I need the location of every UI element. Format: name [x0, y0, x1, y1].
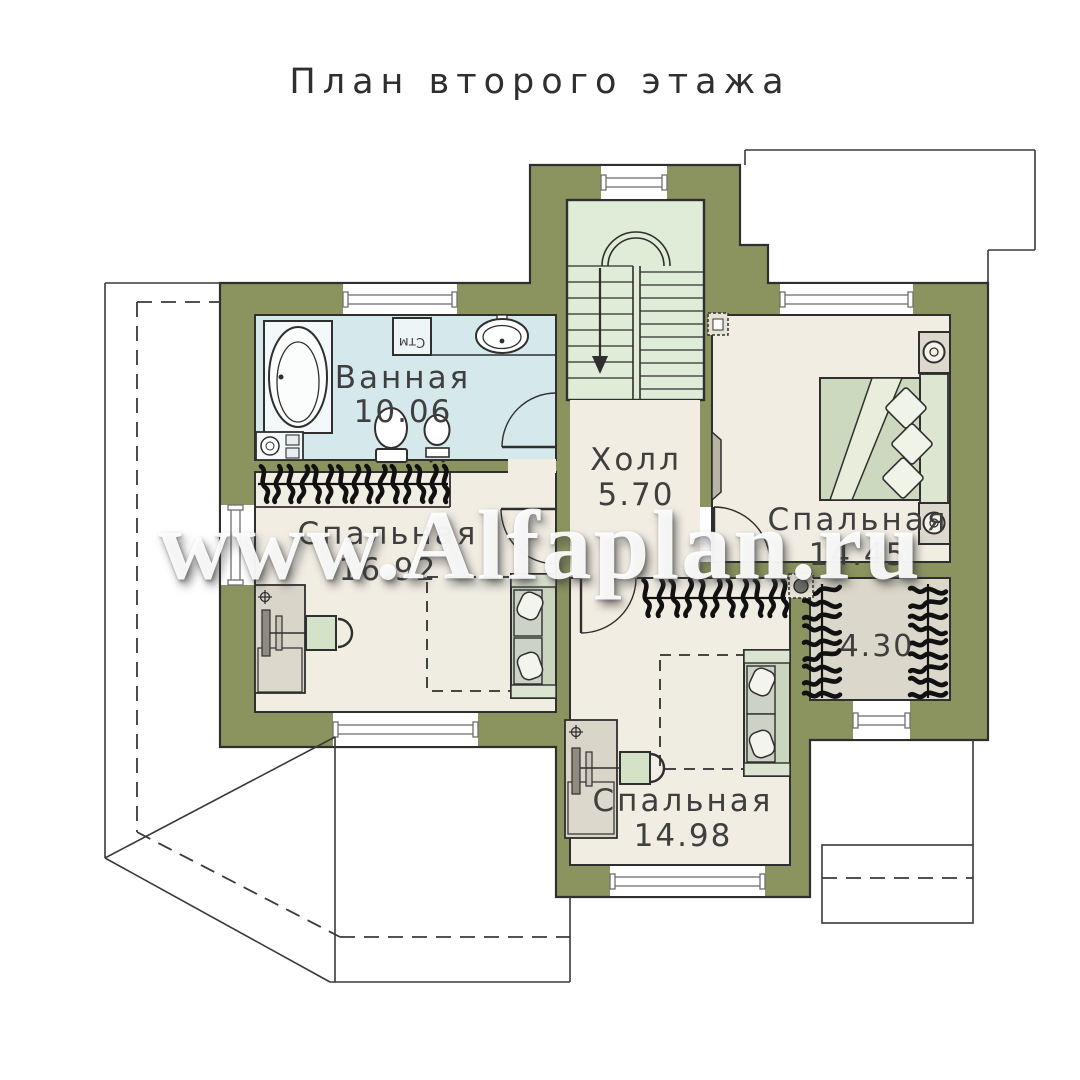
bedroom-bottom-name: Спальная: [593, 783, 774, 819]
bedroom-left-area: 16.92: [339, 552, 438, 588]
window: [333, 713, 478, 746]
window: [853, 701, 910, 739]
bedroom-right-name: Спальная: [768, 502, 949, 538]
floor-plan-page: Ванная 10.06 Стм Холл 5.70 Спальная 16.9…: [0, 0, 1080, 1080]
chair-icon: [306, 616, 336, 650]
sofa-bed-icon: [660, 650, 790, 776]
bedroom-right-area: 14.45: [809, 537, 908, 573]
sofa-bed-icon: [427, 574, 556, 698]
window: [610, 866, 765, 896]
hall-name: Холл: [590, 442, 682, 478]
window: [343, 284, 457, 314]
sofa-foldout: [660, 655, 744, 769]
stairwell-floor: [567, 200, 704, 400]
bathroom-area: 10.06: [354, 394, 453, 430]
window: [780, 284, 913, 314]
floor-plan-drawing: Ванная 10.06 Стм Холл 5.70 Спальная 16.9…: [0, 0, 1080, 1080]
door-opening: [508, 459, 556, 473]
washing-machine-label: Стм: [399, 334, 425, 349]
vent-icon: [789, 574, 813, 598]
chair-icon: [620, 752, 650, 784]
vent-icon: [708, 313, 728, 335]
bathtub-icon: [264, 321, 332, 433]
plan-title: План второго этажа: [0, 62, 1080, 102]
bed-icon: [820, 374, 948, 504]
bedroom-left-name: Спальная: [298, 516, 479, 552]
bedroom-bottom-area: 14.98: [634, 818, 733, 854]
hall-area: 5.70: [597, 477, 674, 513]
window: [601, 166, 667, 199]
laundry-unit-icon: [256, 432, 303, 460]
tv-icon: [712, 432, 721, 500]
window: [221, 505, 254, 585]
door-opening: [580, 561, 637, 579]
sofa-foldout: [427, 577, 511, 691]
nightstand-icon: [919, 332, 950, 373]
bathroom-name: Ванная: [335, 360, 471, 396]
wardrobe-area: 4.30: [840, 629, 915, 664]
